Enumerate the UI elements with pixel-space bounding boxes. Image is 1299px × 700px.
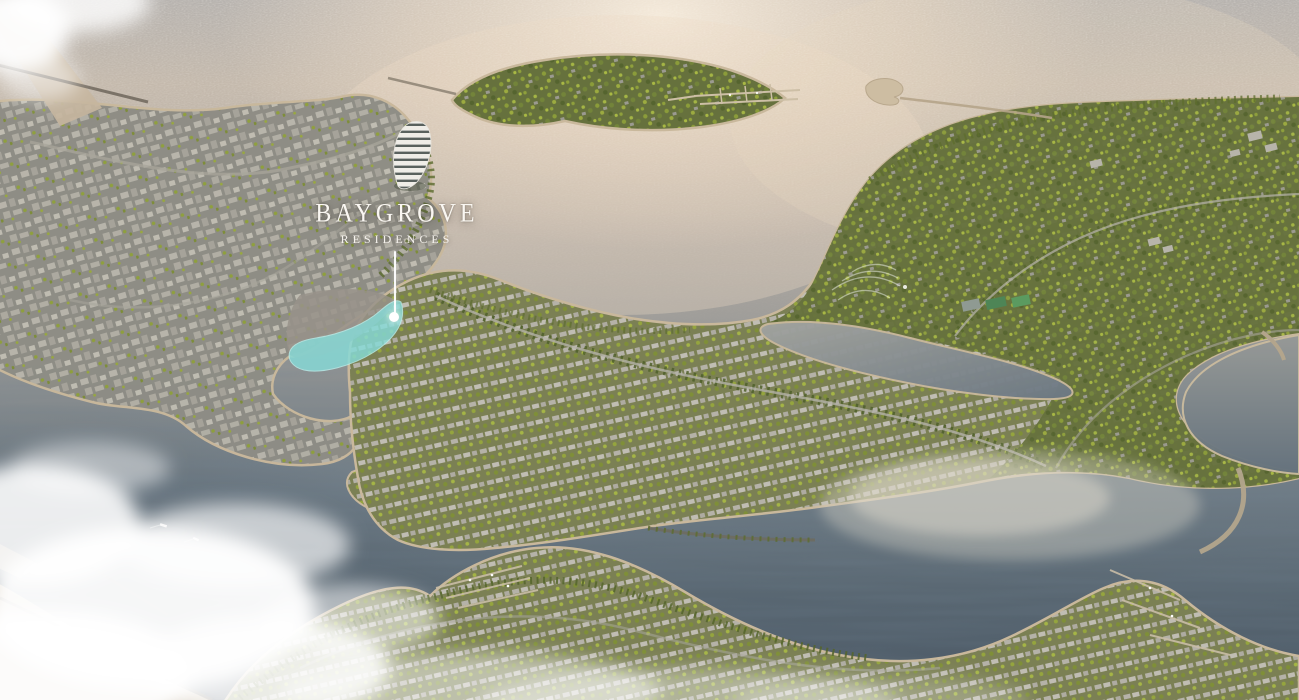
leader-line: [394, 251, 396, 313]
aerial-masterplan-render: BAYGROVE RESIDENCES: [0, 0, 1299, 700]
location-dot-icon[interactable]: [389, 312, 399, 322]
project-title: BAYGROVE: [311, 200, 478, 227]
scene-canvas: [0, 0, 1299, 700]
project-callout[interactable]: BAYGROVE RESIDENCES: [311, 200, 478, 247]
project-subtitle: RESIDENCES: [311, 232, 478, 247]
